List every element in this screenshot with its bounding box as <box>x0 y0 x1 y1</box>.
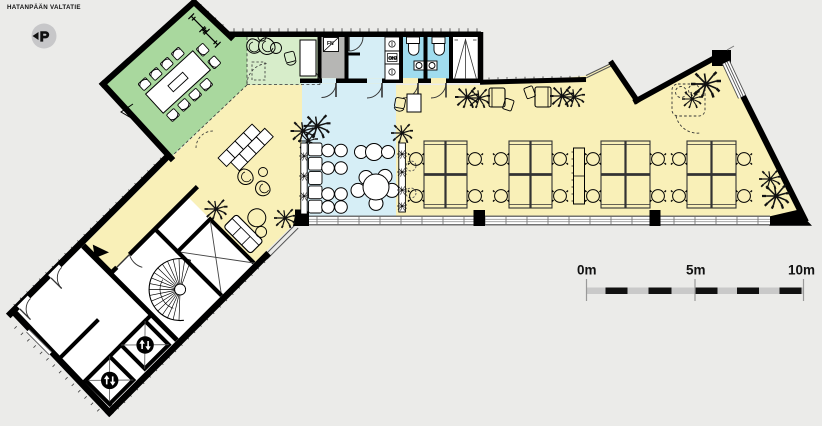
svg-text:HATANPÄÄN VALTATIE: HATANPÄÄN VALTATIE <box>7 4 81 11</box>
svg-text:FN: FN <box>327 41 334 47</box>
svg-text:OHJ: OHJ <box>389 56 397 61</box>
svg-text:10m: 10m <box>788 263 815 278</box>
svg-text:5m: 5m <box>686 263 706 278</box>
svg-text:0m: 0m <box>577 263 597 278</box>
